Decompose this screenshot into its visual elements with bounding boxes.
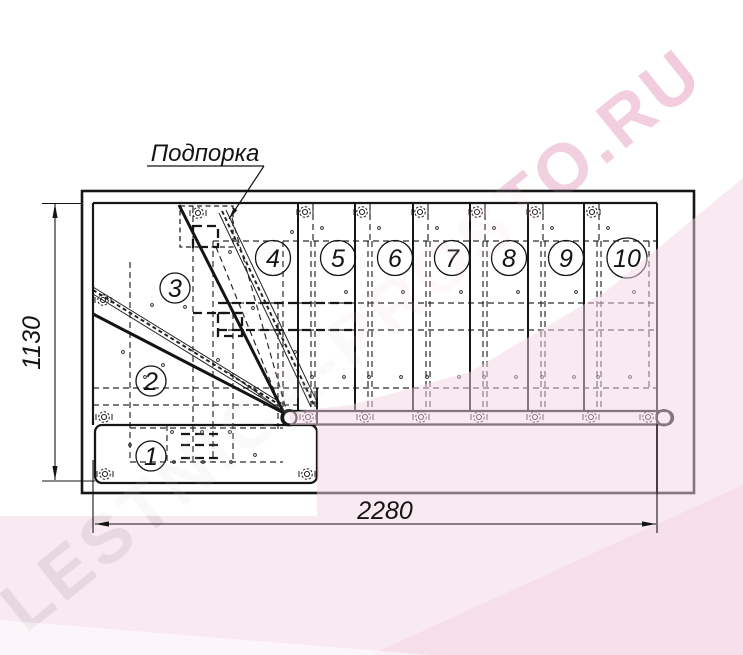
svg-text:4: 4 (266, 245, 280, 273)
drawing-page: LESTNICA-PROSTO.RU (0, 0, 743, 655)
svg-text:5: 5 (331, 245, 345, 273)
dim-width-text: 2280 (356, 497, 413, 525)
callout-text: Подпорка (151, 140, 260, 167)
svg-text:3: 3 (168, 275, 182, 303)
floor-plan-canvas: LESTNICA-PROSTO.RU (0, 0, 743, 655)
dim-height-text: 1130 (18, 316, 46, 370)
svg-text:9: 9 (559, 245, 573, 273)
svg-text:2: 2 (143, 368, 158, 396)
